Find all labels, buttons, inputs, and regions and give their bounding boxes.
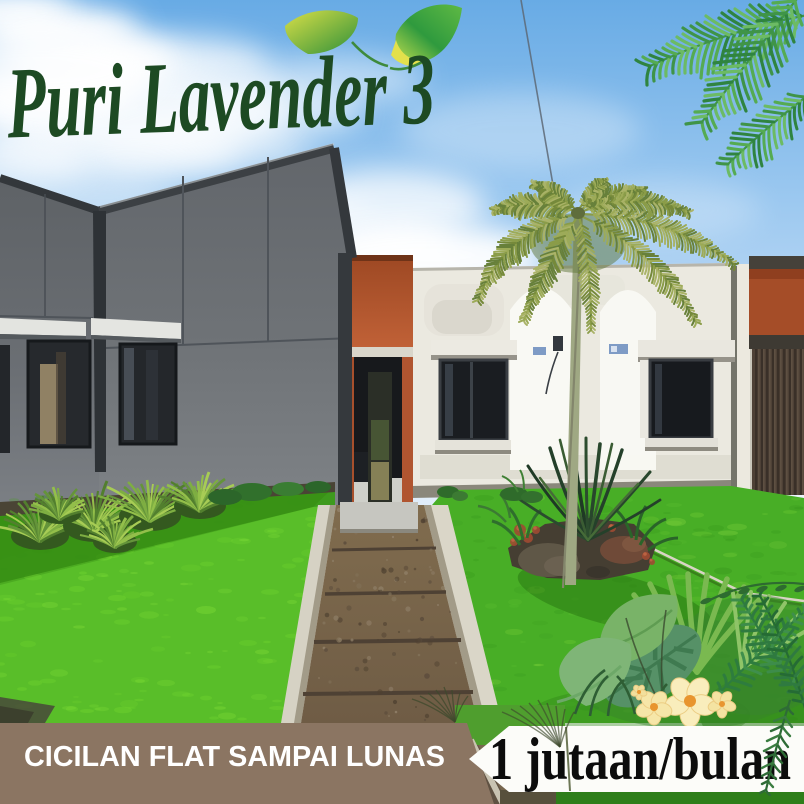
svg-text:1 jutaan/bulan: 1 jutaan/bulan [489,726,791,792]
svg-text:CICILAN FLAT SAMPAI LUNAS: CICILAN FLAT SAMPAI LUNAS [24,741,445,773]
svg-text:Puri Lavender 3: Puri Lavender 3 [4,33,436,161]
